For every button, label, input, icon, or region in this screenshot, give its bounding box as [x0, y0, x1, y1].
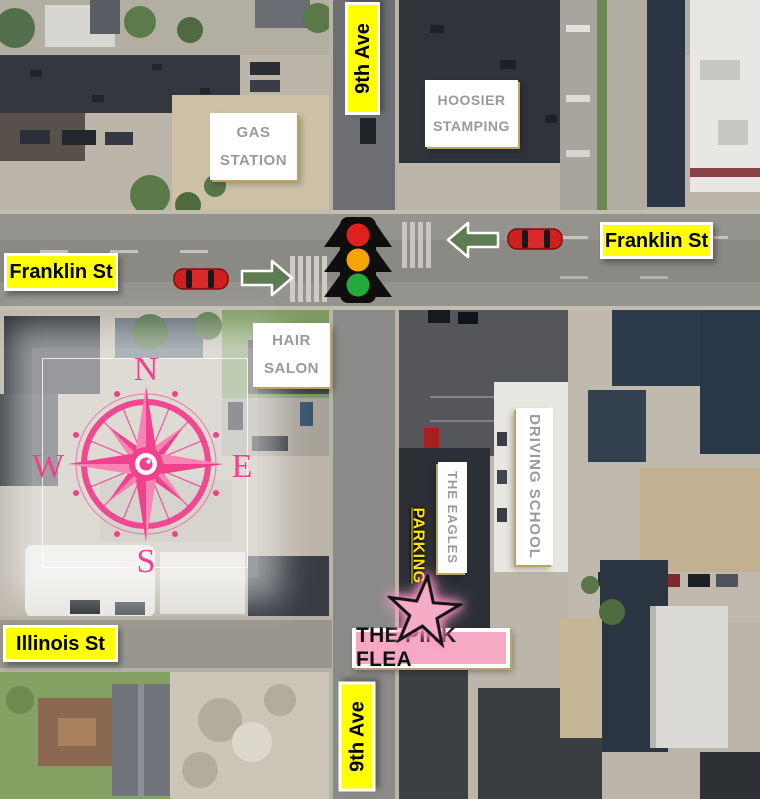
street-label-9th-ave-top: 9th Ave	[345, 2, 380, 115]
compass-south-label: S	[137, 543, 156, 580]
place-label-driving-school: DRIVING SCHOOL	[516, 408, 553, 565]
street-label-9th-ave-bottom: 9th Ave	[339, 682, 376, 792]
annotated-aerial-map: N E S W 9th Ave Franklin	[0, 0, 760, 799]
compass-north-label: N	[134, 351, 159, 388]
green-arrow-east-icon	[239, 258, 295, 298]
compass-east-label: E	[232, 448, 253, 485]
place-label-gas-station: GAS STATION	[210, 113, 297, 180]
star-icon	[382, 570, 465, 652]
parking-label: PARKING	[407, 508, 428, 582]
place-label-the-eagles: THE EAGLES	[438, 462, 467, 573]
street-label-franklin-st-east: Franklin St	[600, 222, 713, 259]
traffic-light-icon	[318, 210, 398, 308]
compass-rose-icon: N E S W	[30, 344, 262, 584]
street-label-illinois-st: Illinois St	[3, 625, 118, 662]
street-label-franklin-st-west: Franklin St	[4, 253, 118, 291]
place-label-hair-salon: HAIR SALON	[253, 323, 330, 387]
red-car-eastbound-icon	[172, 264, 230, 294]
compass-west-label: W	[32, 448, 65, 485]
green-arrow-west-icon	[445, 220, 501, 260]
place-label-hoosier-stamping: HOOSIER STAMPING	[425, 80, 518, 147]
red-car-westbound-icon	[506, 224, 564, 254]
